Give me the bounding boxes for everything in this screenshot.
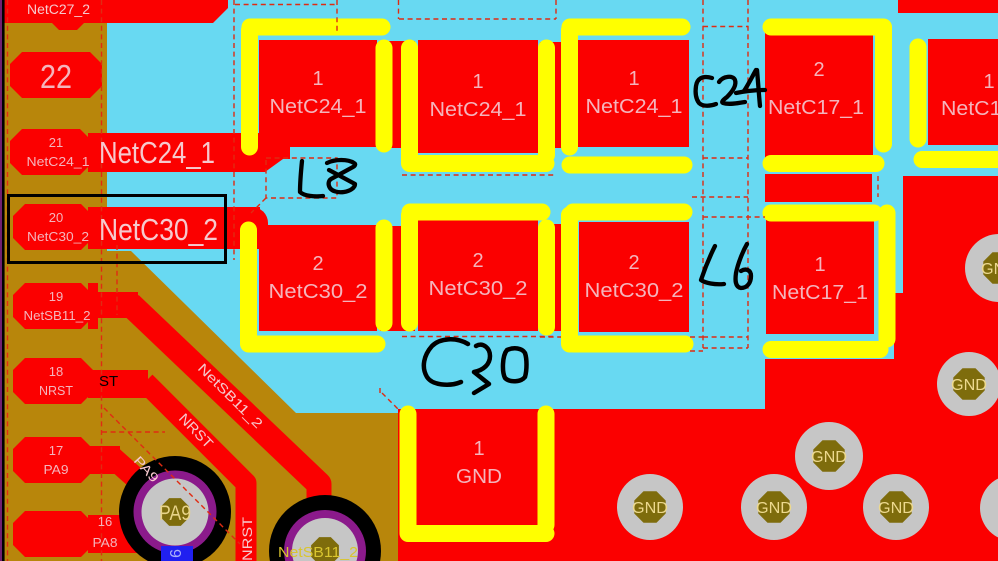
- svg-text:PA8: PA8: [93, 535, 118, 550]
- svg-text:PA9: PA9: [44, 462, 69, 477]
- svg-text:GND: GND: [981, 261, 998, 278]
- svg-text:NetC30_2: NetC30_2: [27, 229, 89, 244]
- svg-text:NetC17_1: NetC17_1: [768, 97, 864, 119]
- svg-text:16: 16: [98, 514, 112, 529]
- svg-text:NetC24_1: NetC24_1: [430, 99, 527, 121]
- svg-text:2: 2: [813, 59, 824, 81]
- svg-text:ST: ST: [99, 373, 118, 390]
- svg-text:NetC24_1: NetC24_1: [27, 154, 90, 169]
- svg-text:GND: GND: [456, 466, 502, 488]
- svg-text:NetSB11_2: NetSB11_2: [24, 308, 91, 323]
- svg-text:GND: GND: [756, 500, 792, 517]
- svg-text:NetC17_1: NetC17_1: [772, 282, 868, 304]
- svg-text:PA9: PA9: [159, 502, 191, 525]
- svg-text:1: 1: [628, 68, 639, 90]
- svg-text:1: 1: [312, 68, 323, 90]
- svg-text:NetC30_2: NetC30_2: [269, 281, 368, 303]
- svg-text:NetC30_2: NetC30_2: [585, 280, 684, 302]
- svg-text:NetC24_1: NetC24_1: [99, 135, 215, 170]
- svg-text:NetC30_2: NetC30_2: [429, 278, 528, 300]
- svg-text:NetC17_1: NetC17_1: [941, 98, 998, 120]
- svg-text:2: 2: [628, 252, 639, 274]
- svg-text:1: 1: [473, 438, 484, 460]
- svg-text:9: 9: [166, 549, 183, 558]
- svg-text:GND: GND: [951, 377, 987, 394]
- svg-text:2: 2: [312, 253, 323, 275]
- svg-text:17: 17: [49, 443, 63, 458]
- svg-text:NRST: NRST: [39, 383, 73, 398]
- svg-text:GND: GND: [878, 500, 914, 517]
- svg-text:NetC30_2: NetC30_2: [99, 212, 218, 247]
- svg-text:GND: GND: [811, 449, 847, 466]
- svg-text:18: 18: [49, 364, 63, 379]
- svg-text:NRST: NRST: [239, 516, 255, 561]
- svg-text:19: 19: [49, 289, 63, 304]
- svg-text:NetSB11_2: NetSB11_2: [278, 545, 358, 561]
- svg-text:1: 1: [472, 71, 483, 93]
- svg-text:GND: GND: [632, 500, 668, 517]
- svg-text:21: 21: [49, 135, 63, 150]
- svg-text:20: 20: [49, 210, 63, 225]
- svg-text:2: 2: [472, 250, 483, 272]
- svg-text:22: 22: [40, 58, 72, 95]
- svg-text:NetC24_1: NetC24_1: [270, 96, 367, 118]
- svg-text:1: 1: [983, 71, 994, 93]
- svg-text:NetC24_1: NetC24_1: [586, 96, 683, 118]
- svg-text:NetC27_2: NetC27_2: [27, 2, 90, 17]
- svg-text:1: 1: [814, 254, 825, 276]
